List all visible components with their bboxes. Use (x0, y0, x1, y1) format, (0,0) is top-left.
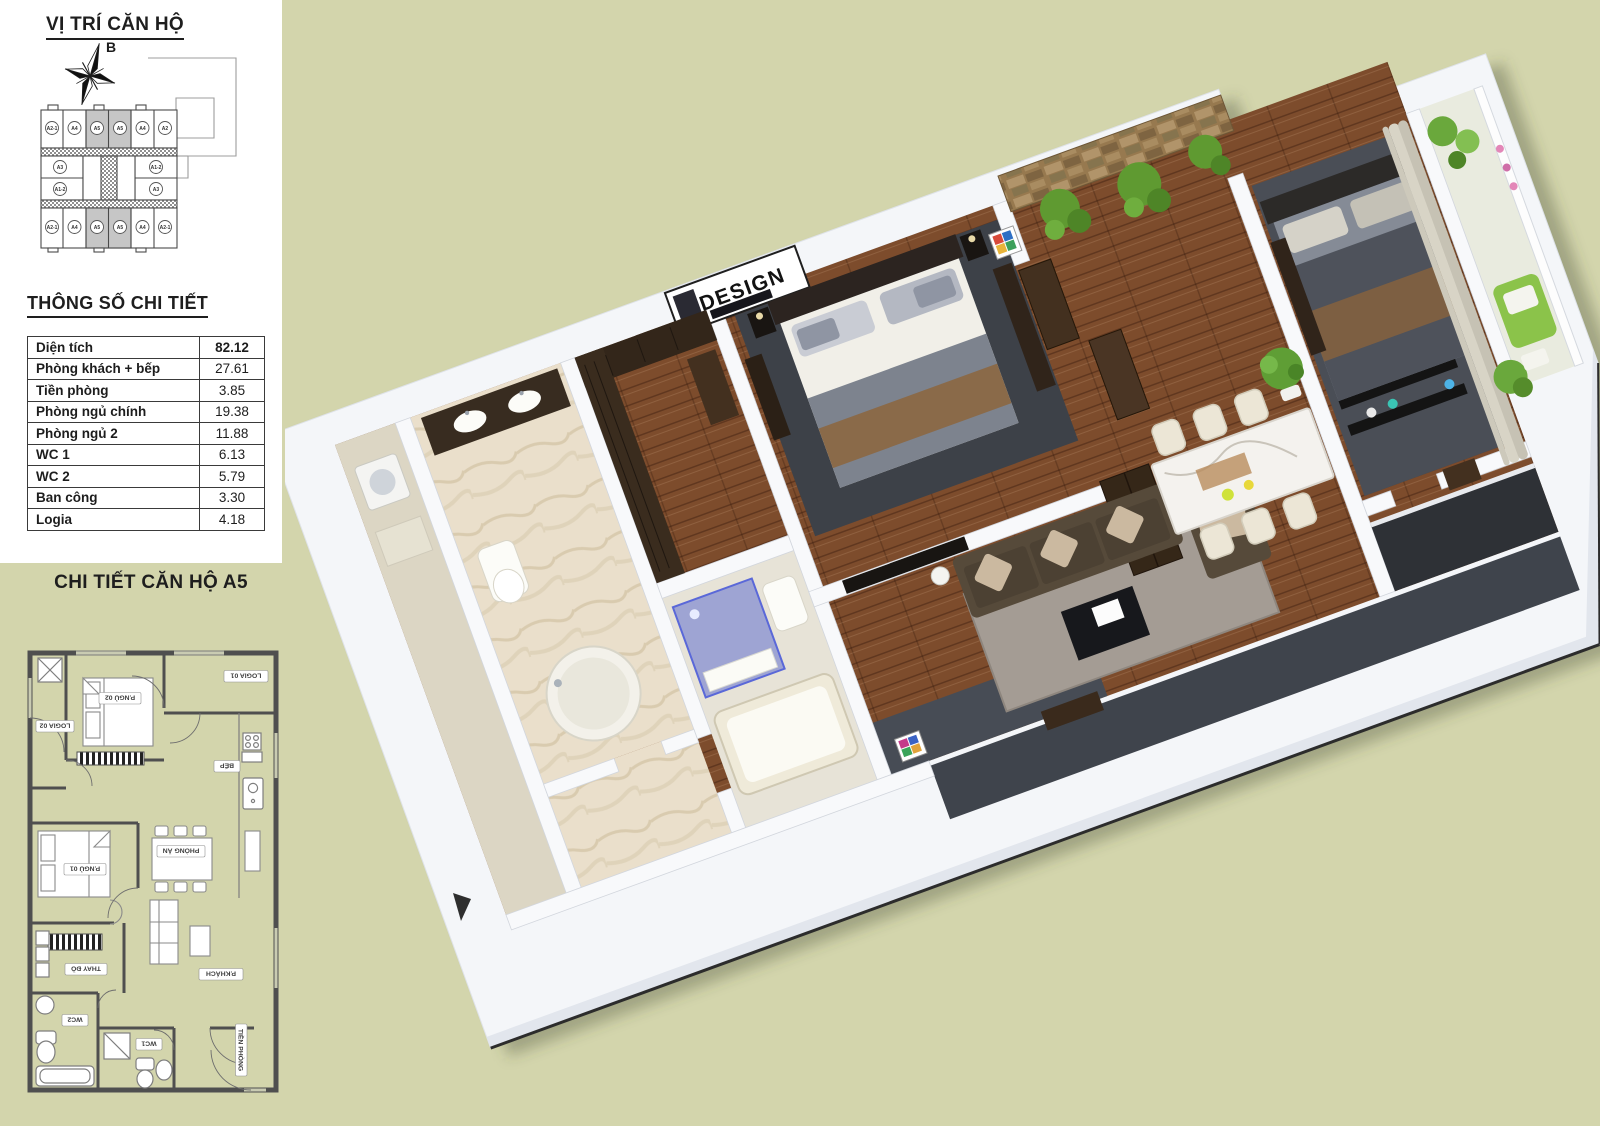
room-label-wc1: WC1 (141, 1040, 156, 1047)
svg-text:A5: A5 (94, 126, 101, 132)
detail-plan-title: CHI TIẾT CĂN HỘ A5 (0, 572, 302, 594)
svg-text:A4: A4 (71, 225, 78, 231)
spec-value: 4.18 (200, 509, 265, 531)
svg-text:A4: A4 (71, 126, 78, 132)
room-label-wc2: WC2 (67, 1016, 82, 1023)
svg-text:A5: A5 (117, 225, 124, 231)
svg-text:A2-1: A2-1 (47, 126, 58, 132)
specs-title-text: THÔNG SỐ CHI TIẾT (27, 293, 208, 318)
table-row: Phòng khách + bếp27.61 (28, 358, 265, 380)
table-row: Tiền phòng3.85 (28, 380, 265, 402)
apartment-3d-render: DESIGN (285, 0, 1600, 1126)
cursor-arrow (452, 892, 476, 924)
table-row: Phòng ngủ 211.88 (28, 423, 265, 445)
room-label-bedroom1: P.NGỦ 01 (70, 865, 100, 874)
svg-text:A4: A4 (139, 126, 146, 132)
svg-text:A2-1: A2-1 (47, 225, 58, 231)
spec-value: 19.38 (200, 401, 265, 423)
room-label-bedroom2: P.NGỦ 02 (105, 694, 135, 703)
spec-value: 3.85 (200, 380, 265, 402)
room-label-dining: PHÒNG ĂN (163, 847, 200, 856)
spec-label: Logia (28, 509, 200, 531)
main-tower-plan (41, 105, 177, 252)
svg-text:A4: A4 (139, 225, 146, 231)
svg-text:A5: A5 (117, 126, 124, 132)
specs-table: Diện tích82.12 Phòng khách + bếp27.61 Ti… (27, 336, 265, 531)
svg-text:A3: A3 (153, 187, 160, 193)
room-label-living: P.KHÁCH (206, 970, 236, 979)
svg-text:A2: A2 (162, 126, 169, 132)
spec-value: 11.88 (200, 423, 265, 445)
spec-label: WC 1 (28, 444, 200, 466)
svg-text:A1-2: A1-2 (55, 187, 66, 193)
spec-label: Phòng ngủ 2 (28, 423, 200, 445)
spec-label: WC 2 (28, 466, 200, 488)
spec-label: Diện tích (28, 337, 200, 359)
spec-label: Tiền phòng (28, 380, 200, 402)
svg-text:A2-1: A2-1 (160, 225, 171, 231)
spec-value: 82.12 (200, 337, 265, 359)
table-row: Logia4.18 (28, 509, 265, 531)
spec-label: Phòng ngủ chính (28, 401, 200, 423)
table-row: WC 16.13 (28, 444, 265, 466)
apartment-rotated-group: DESIGN (285, 0, 1600, 1061)
specs-title: THÔNG SỐ CHI TIẾT (27, 293, 208, 318)
table-row: Ban công3.30 (28, 487, 265, 509)
spec-value: 6.13 (200, 444, 265, 466)
building-key-plan: A2-1 A4 A5 A5 A4 A2 A3 A1-2 A1-2 A3 A2-1… (36, 50, 251, 255)
spec-label: Phòng khách + bếp (28, 358, 200, 380)
spec-label: Ban công (28, 487, 200, 509)
apartment-2d-plan: LOGIA 02 P.NGỦ 02 LOGIA 01 BẾP P.NGỦ 01 … (14, 638, 282, 1110)
svg-text:A5: A5 (94, 225, 101, 231)
spec-value: 27.61 (200, 358, 265, 380)
table-row: Phòng ngủ chính19.38 (28, 401, 265, 423)
svg-text:A1-2: A1-2 (151, 165, 162, 171)
spec-value: 3.30 (200, 487, 265, 509)
room-label-logia01: LOGIA 01 (230, 672, 261, 679)
table-row: WC 25.79 (28, 466, 265, 488)
svg-text:A3: A3 (57, 165, 64, 171)
spec-value: 5.79 (200, 466, 265, 488)
room-label-logia02: LOGIA 02 (39, 722, 70, 729)
table-row: Diện tích82.12 (28, 337, 265, 359)
floorplan-sheet: { "colors": { "background": "#d3d5ac", "… (0, 0, 1600, 1126)
